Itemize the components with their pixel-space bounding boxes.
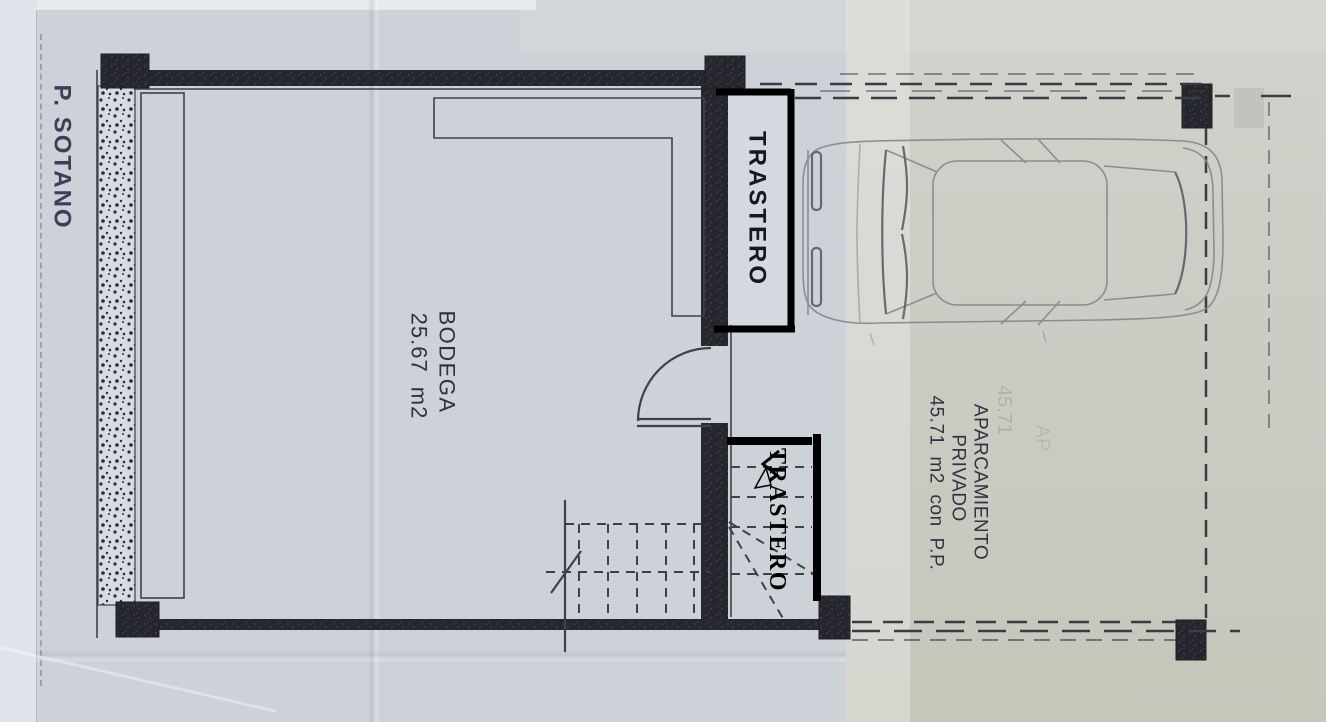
car-b-pillar: [902, 146, 907, 319]
pillar-northwest: [101, 54, 149, 88]
car-wheel-ticks: [870, 331, 1046, 345]
pillar-southeast-parking: [1176, 620, 1206, 660]
wall-north: [103, 70, 727, 86]
car-taillight-left: [812, 152, 821, 210]
door-leaf: [637, 419, 711, 426]
plan-level-title: P. SOTANO: [49, 84, 76, 229]
aparcamiento-label-line2: PRIVADO: [948, 434, 969, 522]
car-rear-deck-line: [857, 144, 860, 322]
bodega-label: BODEGA: [435, 310, 460, 413]
pillar-northeast-bodega: [705, 56, 745, 88]
wall-east-upper: [701, 86, 728, 346]
builtin-counter-l-shape: [434, 98, 704, 316]
parking-markings: [760, 74, 1291, 640]
trastero-lower-label: TRASTERO: [764, 448, 790, 592]
aparcamiento-area-label: 45.71 m2 con P.P.: [926, 396, 947, 571]
pillar-south-middle: [819, 596, 850, 639]
west-wall-lining: [141, 93, 184, 598]
car-taillight-right: [812, 248, 821, 306]
wall-west-hatched: [98, 86, 135, 605]
car-rear-window-frame: [886, 150, 937, 314]
car-rear-glass: [882, 150, 886, 314]
car-windshield-glass: [1175, 172, 1186, 294]
car-windshield-frame: [1104, 166, 1175, 300]
plan-drawing: P. SOTANO BODEGA 25.67 m2 TRASTERO TRAST…: [0, 0, 1326, 722]
pillar-ghost-copy: [1234, 88, 1264, 128]
bodega-area-label: 25.67 m2: [407, 313, 432, 420]
pillars: [101, 54, 1264, 660]
ghost-text-partial: AP: [1031, 425, 1053, 452]
labels: P. SOTANO BODEGA 25.67 m2 TRASTERO TRAST…: [49, 84, 1054, 592]
aparcamiento-label-line1: APARCAMIENTO: [970, 404, 991, 560]
pillar-southwest: [116, 602, 159, 637]
trastero-upper-label: TRASTERO: [744, 131, 771, 287]
car-front-wrap-line: [1183, 148, 1214, 310]
door-swing-arc: [638, 348, 711, 421]
wall-east-lower: [701, 423, 728, 620]
door: [637, 348, 711, 426]
car-roof-panel: [933, 161, 1107, 305]
floorplan-scan: P. SOTANO BODEGA 25.67 m2 TRASTERO TRAST…: [0, 0, 1326, 722]
stair-treads: [579, 524, 694, 617]
car-roof-pillar-diagonals: [1001, 139, 1060, 325]
wall-south: [118, 619, 849, 630]
car-drawing: [803, 139, 1223, 345]
ghost-text-area: 45.71: [993, 385, 1015, 435]
